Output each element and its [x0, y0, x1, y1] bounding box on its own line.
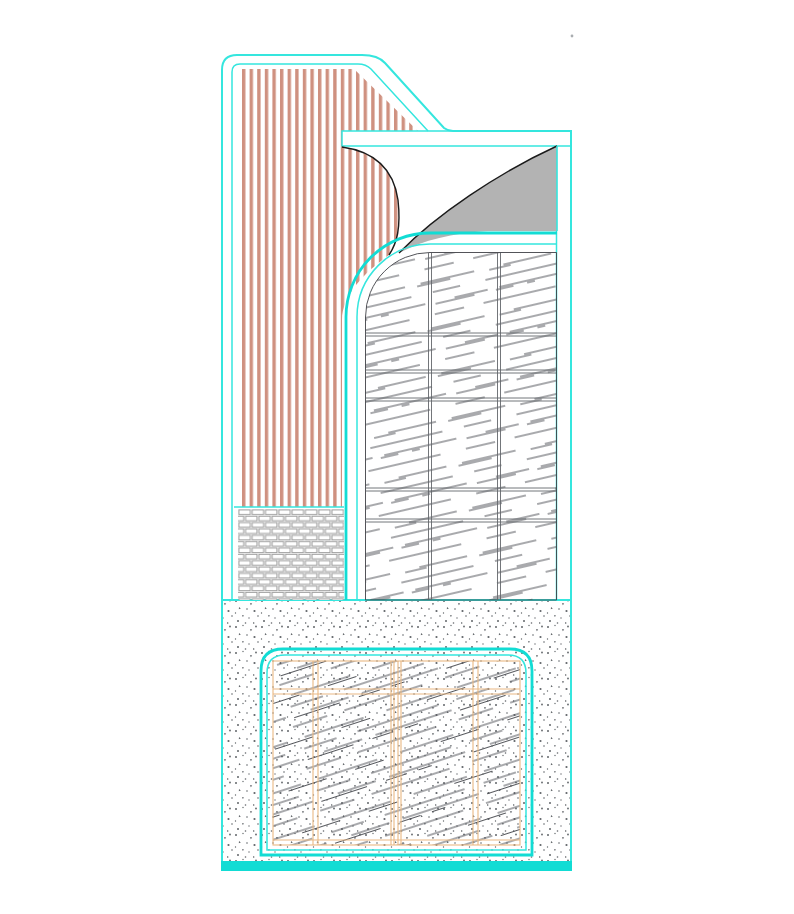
- peel-shape[interactable]: [399, 146, 557, 253]
- peel-fill: [399, 146, 557, 253]
- arch-hatch-panel[interactable]: [346, 233, 557, 600]
- drawing-svg[interactable]: [0, 0, 794, 914]
- arch-hatch-fill: [366, 253, 557, 601]
- brick-base[interactable]: [238, 509, 344, 600]
- window-hatch-panel[interactable]: [261, 649, 532, 855]
- stray-dot: [571, 35, 574, 38]
- ledge-slab[interactable]: [342, 131, 571, 146]
- footing-bottom-bar: [221, 861, 572, 871]
- cad-canvas[interactable]: [0, 0, 794, 914]
